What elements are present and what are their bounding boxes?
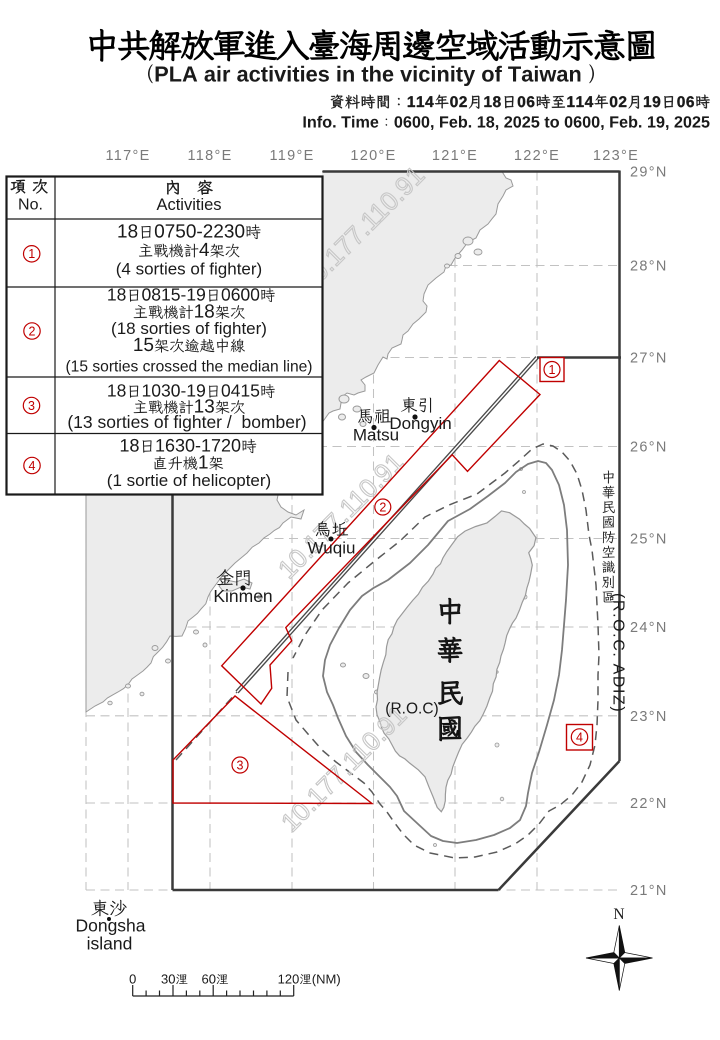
svg-text:island: island	[87, 934, 133, 954]
svg-text:1: 1	[549, 363, 556, 377]
svg-text:(R.O.C. ADIZ): (R.O.C. ADIZ)	[610, 593, 627, 713]
svg-text:1: 1	[28, 247, 35, 261]
svg-text:(18 sorties of fighter): (18 sorties of fighter)	[111, 319, 267, 338]
svg-text:21°N: 21°N	[630, 883, 668, 899]
svg-text:123°E: 123°E	[593, 148, 639, 164]
svg-text:23°N: 23°N	[630, 709, 668, 725]
svg-text:25°N: 25°N	[630, 532, 668, 548]
svg-text:(4 sorties of fighter): (4 sorties of fighter)	[116, 260, 262, 279]
svg-text:(13 sorties of fighter / bomb: (13 sorties of fighter / bomber)	[67, 412, 306, 432]
svg-text:(R.O.C): (R.O.C)	[385, 701, 438, 718]
svg-text:28°N: 28°N	[630, 259, 668, 275]
svg-text:4: 4	[29, 459, 36, 473]
svg-text:120°E: 120°E	[350, 148, 396, 164]
svg-text:3: 3	[237, 758, 244, 772]
svg-text:No.: No.	[18, 197, 43, 214]
svg-text:Activities: Activities	[156, 196, 221, 214]
svg-text:N: N	[613, 906, 624, 923]
svg-text:2: 2	[379, 500, 386, 514]
svg-text:4: 4	[576, 730, 583, 744]
svg-text:29°N: 29°N	[630, 165, 668, 181]
svg-text:2: 2	[29, 324, 36, 338]
svg-text:121°E: 121°E	[432, 148, 478, 164]
svg-text:26°N: 26°N	[630, 440, 668, 456]
svg-text:(15 sorties crossed the median: (15 sorties crossed the median line)	[65, 359, 312, 376]
svg-text:22°N: 22°N	[630, 796, 668, 812]
svg-text:3: 3	[28, 399, 35, 413]
svg-text:122°E: 122°E	[514, 148, 560, 164]
svg-text:(1 sortie of helicopter): (1 sortie of helicopter)	[107, 471, 271, 490]
svg-text:24°N: 24°N	[630, 620, 668, 636]
svg-text:27°N: 27°N	[630, 351, 668, 367]
